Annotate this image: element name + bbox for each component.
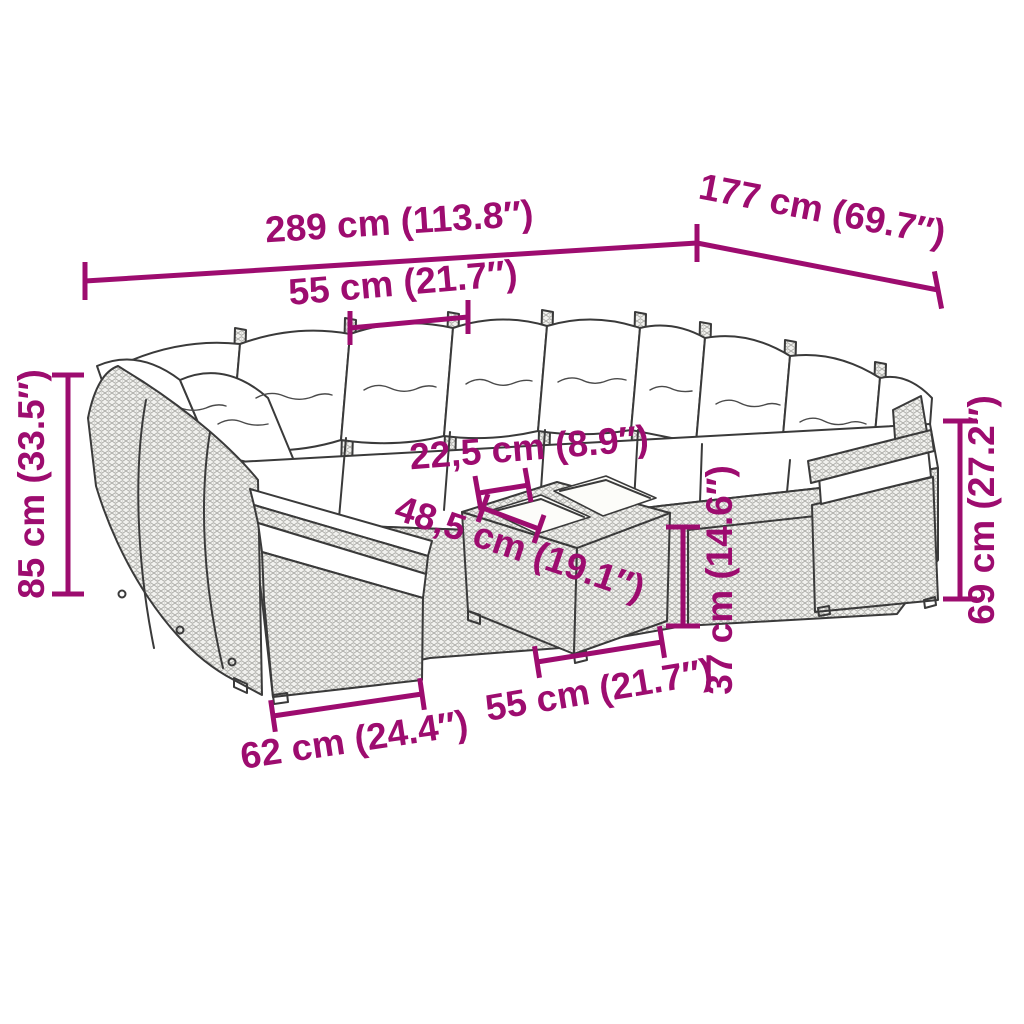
dimension-label: 55 cm (21.7″) — [482, 651, 715, 729]
dimension-diagram: 289 cm (113.8″) 177 cm (69.7″) 55 cm (21… — [0, 0, 1024, 1024]
dimension-label: 69 cm (27.2″) — [961, 395, 1002, 625]
dimension-backrest-height: 69 cm (27.2″) — [943, 395, 1002, 625]
dimension-overall-depth: 177 cm (69.7″) — [696, 166, 949, 309]
furniture-dimension-drawing: 289 cm (113.8″) 177 cm (69.7″) 55 cm (21… — [0, 0, 1024, 1024]
dimension-label: 177 cm (69.7″) — [696, 166, 949, 254]
sofa-illustration — [88, 310, 938, 704]
back-cushion — [444, 319, 547, 438]
back-cushion — [341, 323, 453, 443]
screw-hole — [119, 591, 126, 598]
dimension-label: 85 cm (33.5″) — [11, 369, 52, 599]
back-cushion — [538, 319, 640, 434]
dimension-label: 55 cm (21.7″) — [287, 252, 519, 313]
dimension-overall-height: 85 cm (33.5″) — [11, 369, 84, 599]
dimension-label: 289 cm (113.8″) — [264, 193, 535, 251]
